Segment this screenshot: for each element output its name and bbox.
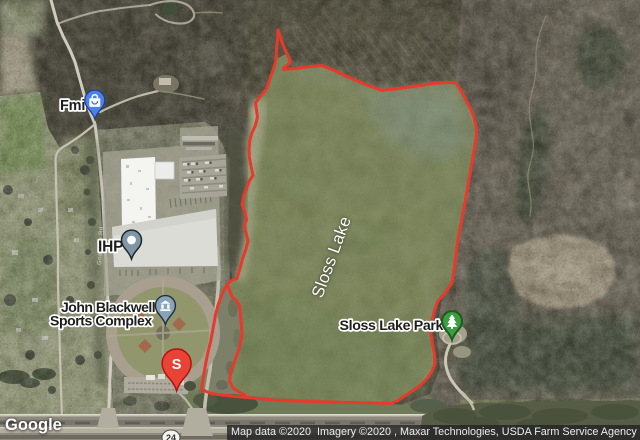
svg-text:24: 24 [166, 433, 176, 440]
svg-text:S: S [172, 357, 182, 373]
svg-text:IHP: IHP [98, 239, 123, 256]
svg-text:Fmi: Fmi [60, 98, 85, 114]
svg-text:Sports Complex: Sports Complex [50, 313, 152, 329]
svg-text:Sloss Lake Park: Sloss Lake Park [340, 318, 444, 334]
